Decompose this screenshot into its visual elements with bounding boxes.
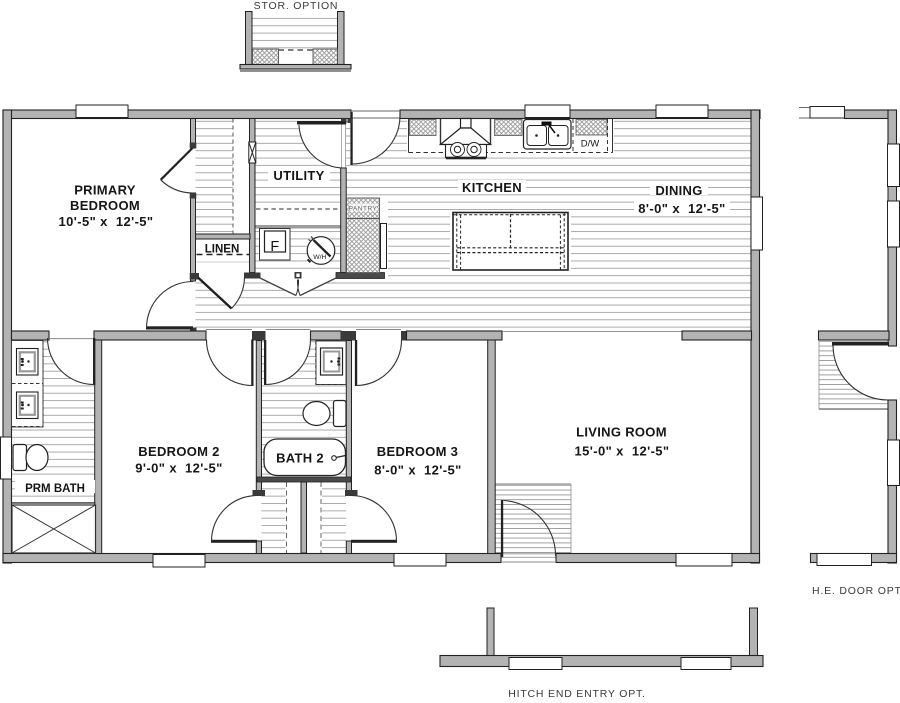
svg-text:BEDROOM 3: BEDROOM 3 — [377, 444, 458, 459]
svg-text:BEDROOM 2: BEDROOM 2 — [138, 444, 219, 459]
svg-text:F: F — [270, 239, 279, 255]
svg-text:W/H: W/H — [313, 254, 326, 261]
svg-text:KITCHEN: KITCHEN — [462, 180, 522, 195]
svg-text:D/W: D/W — [581, 139, 600, 150]
svg-text:UTILITY: UTILITY — [273, 168, 324, 183]
svg-text:HITCH END ENTRY OPT.: HITCH END ENTRY OPT. — [508, 688, 646, 698]
svg-text:LINEN: LINEN — [205, 244, 240, 256]
svg-text:8'-0" x 12'-5": 8'-0" x 12'-5" — [638, 201, 725, 216]
svg-text:BATH 2: BATH 2 — [276, 451, 324, 466]
svg-text:10'-5" x 12'-5": 10'-5" x 12'-5" — [58, 214, 153, 229]
svg-text:15'-0" x 12'-5": 15'-0" x 12'-5" — [574, 444, 669, 459]
svg-text:PANTRY: PANTRY — [349, 206, 378, 213]
svg-text:8'-0" x 12'-5": 8'-0" x 12'-5" — [374, 463, 461, 478]
svg-text:PRIMARY: PRIMARY — [74, 183, 136, 198]
svg-text:DINING: DINING — [655, 183, 702, 198]
svg-text:STOR. OPTION: STOR. OPTION — [254, 0, 339, 12]
svg-text:PRM BATH: PRM BATH — [25, 483, 85, 495]
svg-text:BEDROOM: BEDROOM — [70, 198, 140, 213]
svg-text:LIVING ROOM: LIVING ROOM — [576, 425, 667, 440]
svg-text:H.E. DOOR OPT.: H.E. DOOR OPT. — [812, 585, 900, 597]
svg-text:9'-0" x 12'-5": 9'-0" x 12'-5" — [135, 461, 222, 476]
